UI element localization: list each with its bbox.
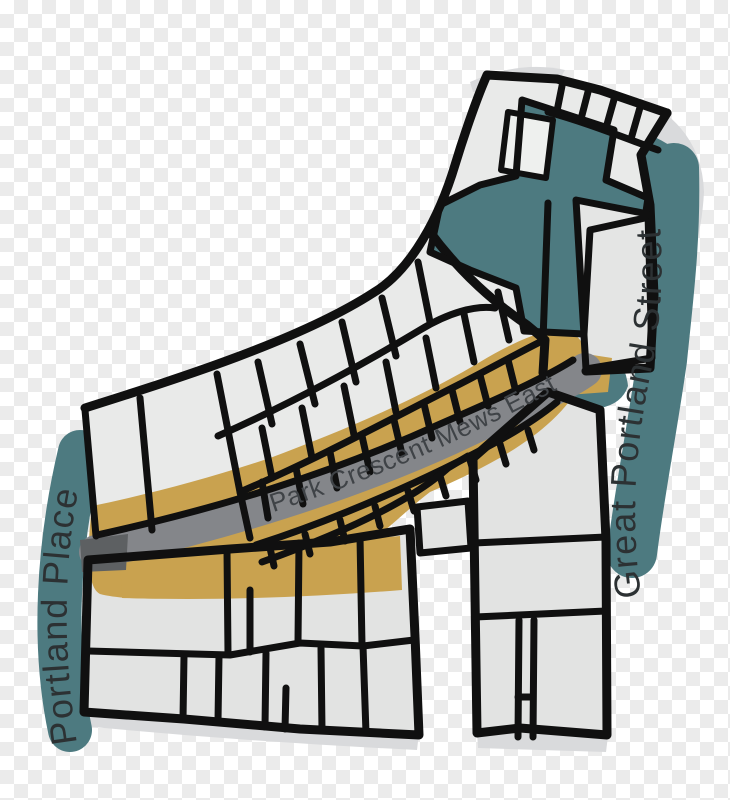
hand-drawn-map: Park Crescent Mews East Great Portland S… [0,0,730,800]
map-illustration-stage: Park Crescent Mews East Great Portland S… [0,0,730,800]
